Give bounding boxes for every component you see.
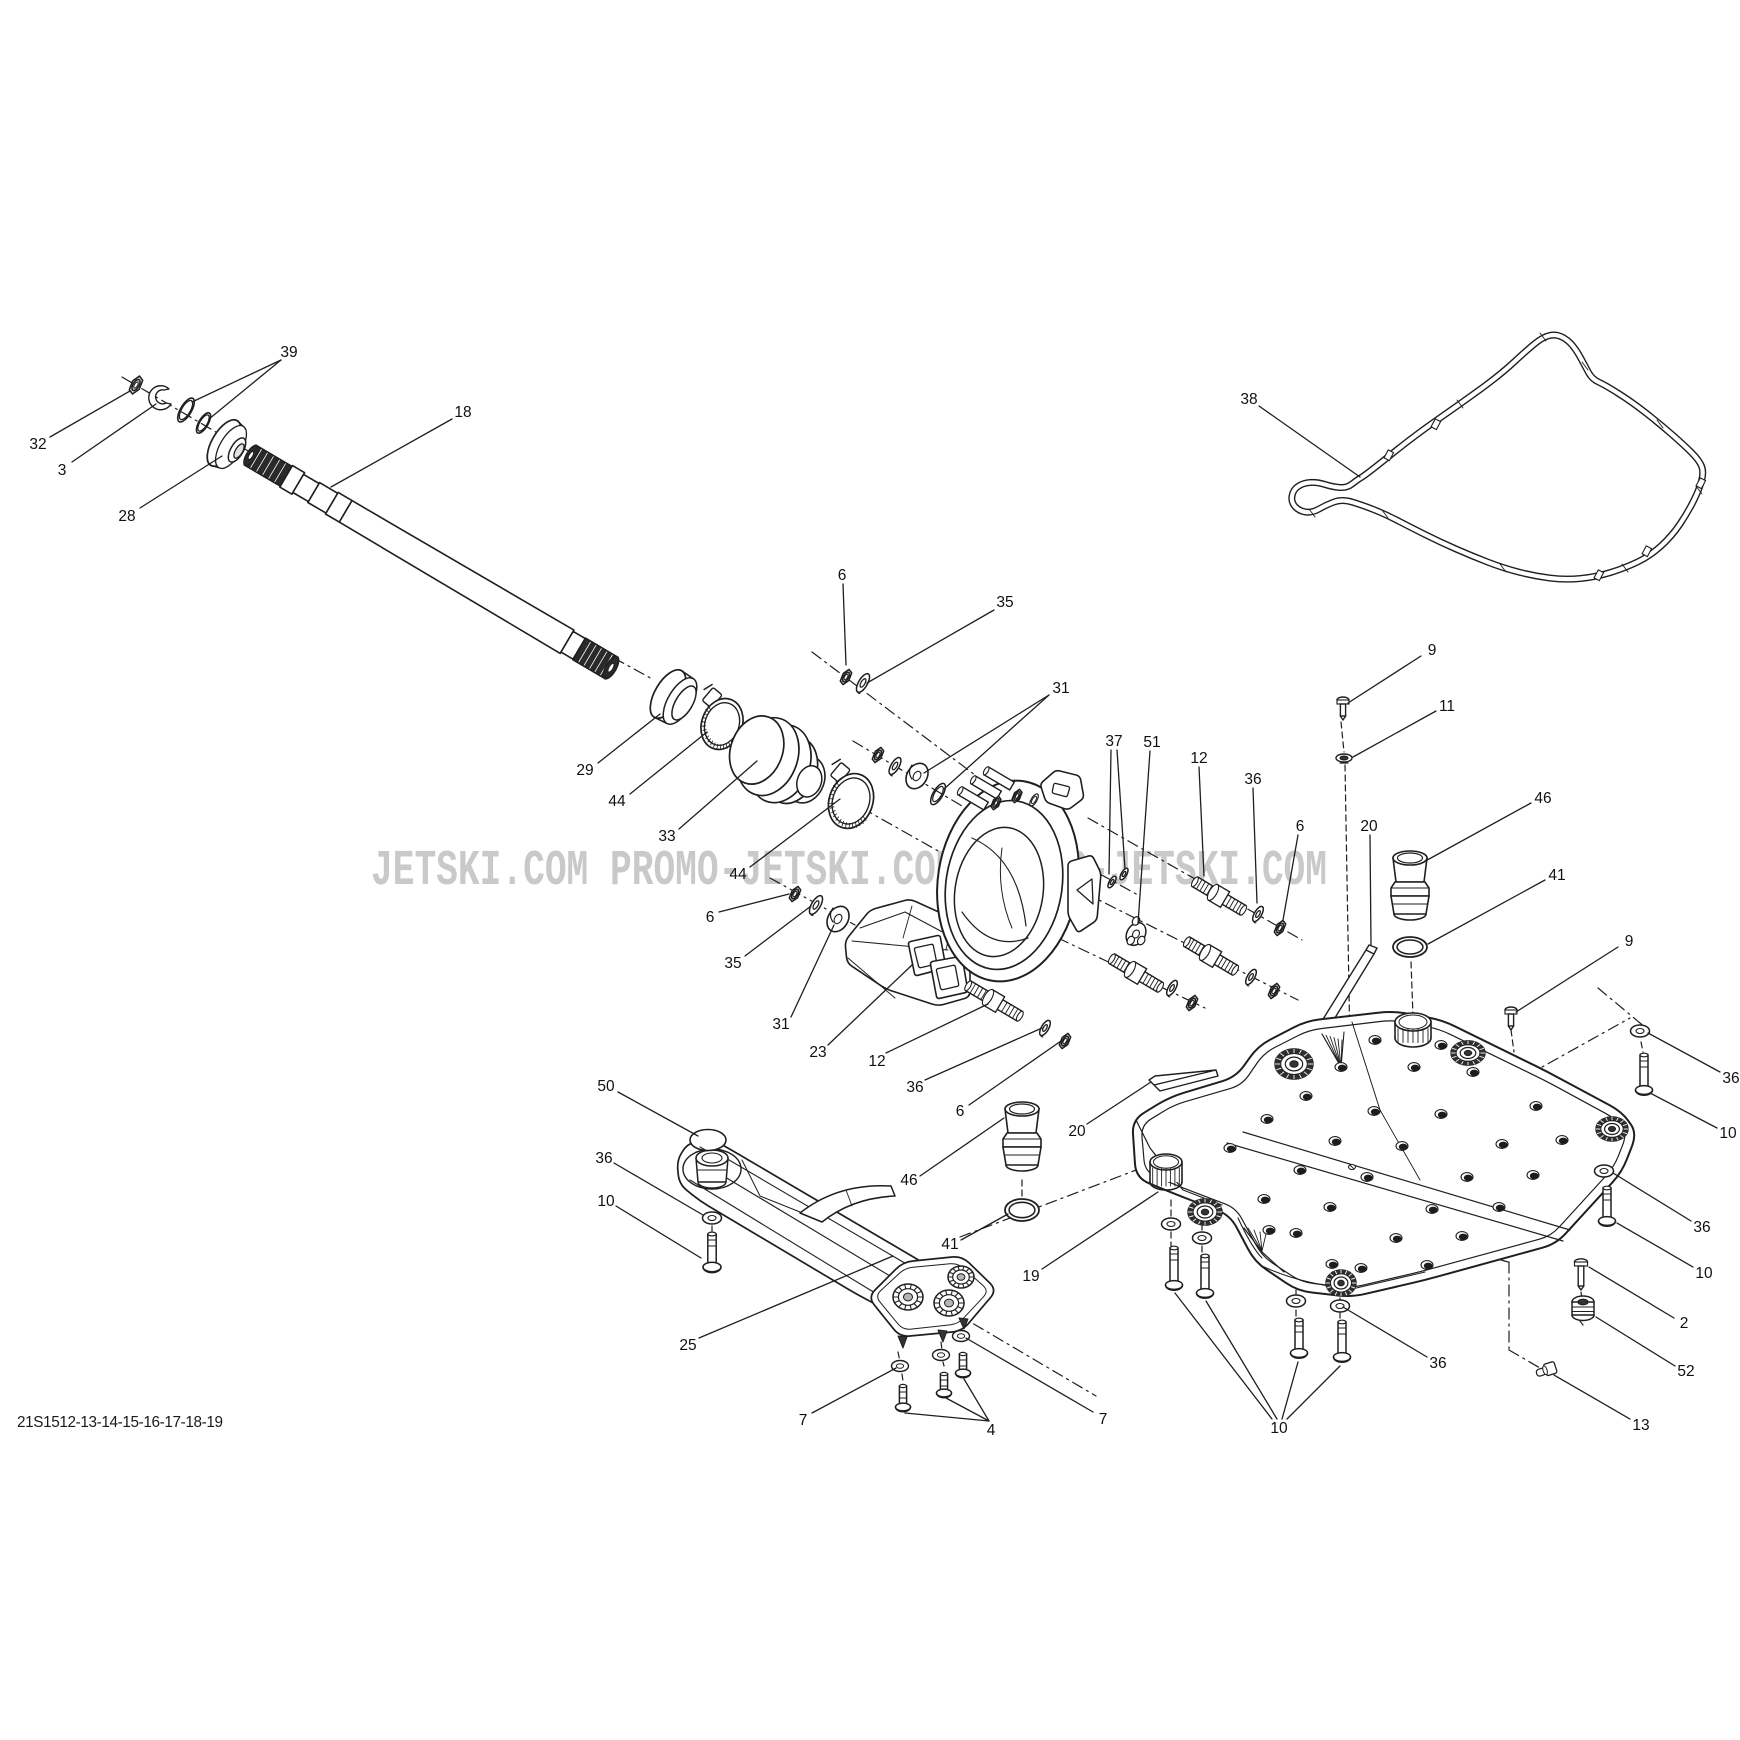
svg-text:39: 39 <box>280 344 297 361</box>
svg-text:20: 20 <box>1360 818 1378 835</box>
svg-text:32: 32 <box>29 436 46 453</box>
svg-text:36: 36 <box>906 1079 923 1096</box>
svg-text:3: 3 <box>58 462 67 479</box>
svg-text:33: 33 <box>658 828 675 845</box>
svg-text:13: 13 <box>1632 1417 1649 1434</box>
svg-text:10: 10 <box>1270 1420 1288 1437</box>
svg-text:52: 52 <box>1677 1363 1694 1380</box>
svg-text:25: 25 <box>679 1337 696 1354</box>
svg-text:10: 10 <box>1719 1125 1737 1142</box>
svg-text:41: 41 <box>1548 867 1565 884</box>
svg-text:31: 31 <box>1052 680 1069 697</box>
svg-text:11: 11 <box>1439 698 1455 715</box>
svg-text:10: 10 <box>597 1193 615 1210</box>
svg-text:19: 19 <box>1022 1268 1039 1285</box>
svg-text:36: 36 <box>1722 1070 1739 1087</box>
svg-text:6: 6 <box>706 909 715 926</box>
svg-text:18: 18 <box>454 404 471 421</box>
svg-text:28: 28 <box>118 508 135 525</box>
svg-text:46: 46 <box>900 1172 917 1189</box>
svg-text:12: 12 <box>868 1053 885 1070</box>
svg-text:20: 20 <box>1068 1123 1086 1140</box>
svg-text:41: 41 <box>941 1236 958 1253</box>
svg-text:21S1512-13-14-15-16-17-18-19: 21S1512-13-14-15-16-17-18-19 <box>17 1414 223 1431</box>
svg-text:36: 36 <box>1693 1219 1710 1236</box>
svg-text:36: 36 <box>595 1150 612 1167</box>
svg-text:JETSKI.COM PROMO-JETSKI.COM PR: JETSKI.COM PROMO-JETSKI.COM PROMO-JETSKI… <box>371 843 1327 900</box>
svg-text:36: 36 <box>1244 771 1261 788</box>
svg-text:44: 44 <box>608 793 626 810</box>
svg-text:9: 9 <box>1428 642 1437 659</box>
svg-text:37: 37 <box>1105 733 1122 750</box>
svg-text:2: 2 <box>1680 1315 1689 1332</box>
svg-text:7: 7 <box>799 1412 808 1429</box>
svg-text:23: 23 <box>809 1044 826 1061</box>
svg-text:44: 44 <box>729 866 747 883</box>
svg-text:50: 50 <box>597 1078 615 1095</box>
svg-text:6: 6 <box>838 567 847 584</box>
svg-text:35: 35 <box>724 955 741 972</box>
svg-text:31: 31 <box>772 1016 789 1033</box>
svg-text:9: 9 <box>1625 933 1634 950</box>
svg-text:6: 6 <box>956 1103 965 1120</box>
svg-text:6: 6 <box>1296 818 1305 835</box>
svg-text:29: 29 <box>576 762 593 779</box>
svg-text:35: 35 <box>996 594 1013 611</box>
svg-text:51: 51 <box>1143 734 1160 751</box>
svg-text:36: 36 <box>1429 1355 1446 1372</box>
svg-text:7: 7 <box>1099 1411 1108 1428</box>
svg-text:12: 12 <box>1190 750 1207 767</box>
svg-text:4: 4 <box>987 1422 996 1439</box>
svg-text:10: 10 <box>1695 1265 1713 1282</box>
svg-text:46: 46 <box>1534 790 1551 807</box>
svg-text:38: 38 <box>1240 391 1257 408</box>
